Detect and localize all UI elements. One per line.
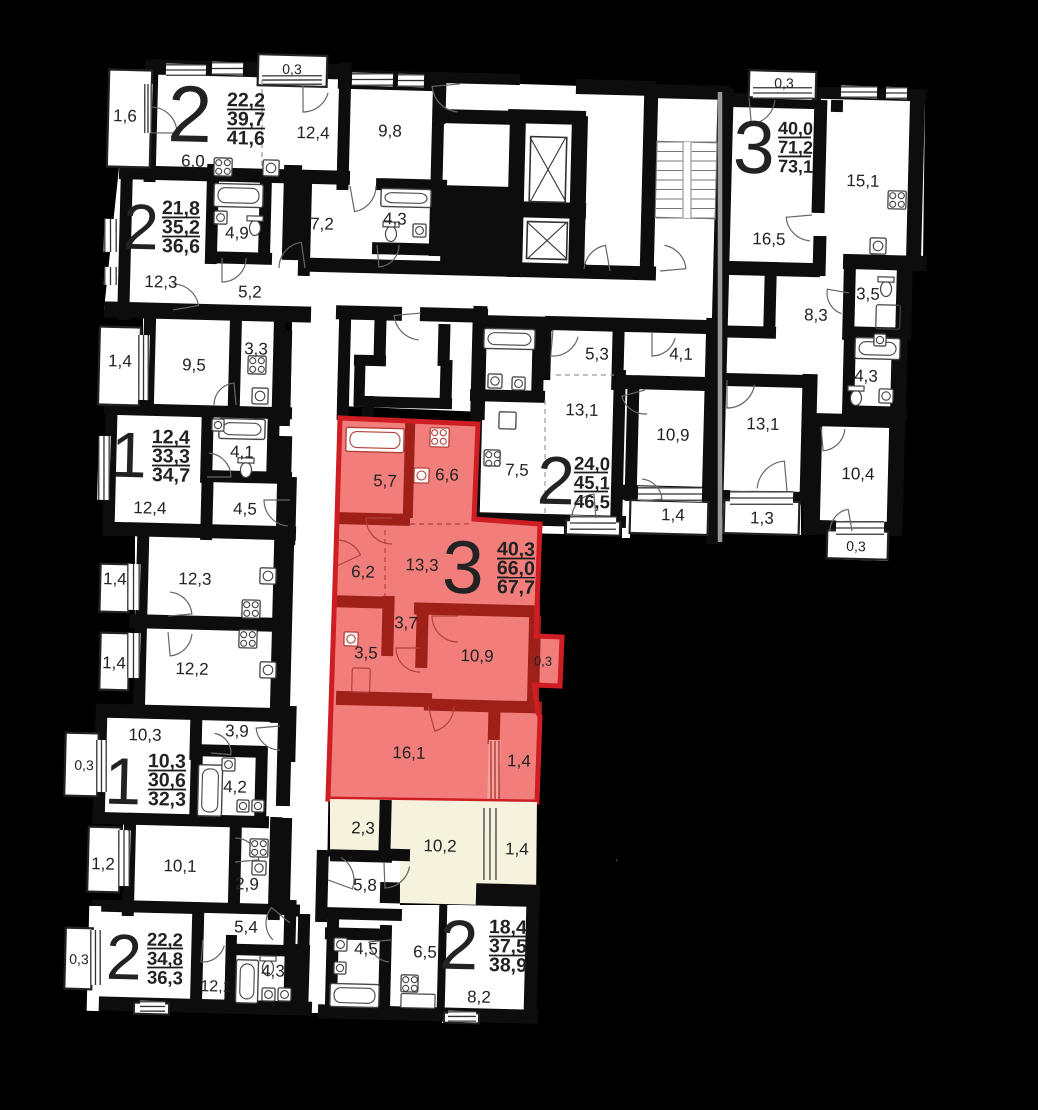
svg-text:12,1: 12,1	[200, 978, 232, 996]
svg-text:6,5: 6,5	[413, 942, 437, 962]
svg-text:0,3: 0,3	[846, 538, 866, 554]
svg-text:15,1: 15,1	[846, 171, 880, 191]
svg-text:1: 1	[110, 419, 147, 492]
svg-text:67,7: 67,7	[497, 576, 535, 599]
svg-text:10,9: 10,9	[460, 646, 494, 666]
svg-text:0,3: 0,3	[69, 951, 89, 967]
svg-text:0,3: 0,3	[534, 653, 552, 668]
svg-text:2: 2	[122, 191, 159, 264]
svg-text:2: 2	[536, 443, 576, 520]
svg-text:1,4: 1,4	[102, 653, 126, 673]
svg-text:6,2: 6,2	[351, 562, 375, 582]
svg-text:2,3: 2,3	[351, 818, 375, 838]
svg-text:1,4: 1,4	[108, 351, 132, 371]
svg-text:36,3: 36,3	[147, 967, 184, 989]
svg-text:5,4: 5,4	[234, 917, 258, 937]
svg-text:4,3: 4,3	[383, 209, 407, 229]
svg-text:34,7: 34,7	[152, 464, 190, 487]
svg-text:71,2: 71,2	[778, 137, 814, 158]
svg-text:10,9: 10,9	[656, 425, 690, 445]
svg-text:1,2: 1,2	[91, 854, 115, 874]
svg-text:13,1: 13,1	[565, 400, 599, 420]
svg-text:3,5: 3,5	[856, 284, 880, 304]
svg-text:4,9: 4,9	[225, 223, 249, 243]
svg-text:4,1: 4,1	[230, 442, 254, 462]
svg-text:8,3: 8,3	[804, 305, 828, 325]
svg-text:12,4: 12,4	[133, 498, 167, 518]
svg-text:0,3: 0,3	[282, 61, 302, 77]
svg-text:5,3: 5,3	[585, 344, 609, 364]
svg-text:4,5: 4,5	[233, 499, 257, 519]
svg-text:3,7: 3,7	[394, 613, 418, 633]
svg-text:2: 2	[105, 921, 142, 994]
svg-text:13,1: 13,1	[746, 414, 780, 434]
svg-text:6,6: 6,6	[435, 465, 459, 485]
svg-text:3,9: 3,9	[225, 721, 249, 741]
svg-text:5,7: 5,7	[373, 471, 397, 491]
svg-text:73,1: 73,1	[778, 156, 814, 177]
svg-text:1,4: 1,4	[507, 751, 531, 771]
svg-text:16,5: 16,5	[752, 229, 786, 249]
svg-text:13,3: 13,3	[405, 555, 439, 575]
svg-text:1,4: 1,4	[661, 505, 685, 525]
svg-text:1: 1	[104, 743, 143, 818]
svg-text:10,4: 10,4	[841, 464, 875, 484]
svg-text:38,9: 38,9	[489, 954, 528, 977]
svg-text:41,6: 41,6	[227, 127, 266, 150]
svg-text:4,5: 4,5	[354, 939, 378, 959]
svg-text:36,6: 36,6	[162, 235, 201, 258]
svg-text:32,3: 32,3	[148, 788, 187, 811]
svg-text:4,3: 4,3	[854, 366, 878, 386]
svg-text:0,3: 0,3	[774, 75, 794, 91]
svg-text:1,6: 1,6	[113, 106, 137, 126]
svg-text:0,3: 0,3	[74, 757, 94, 773]
svg-text:12,4: 12,4	[296, 123, 330, 143]
svg-text:6,0: 6,0	[181, 151, 205, 171]
svg-text:4,1: 4,1	[669, 344, 693, 364]
svg-text:10,3: 10,3	[128, 725, 162, 745]
svg-text:9,8: 9,8	[378, 121, 402, 141]
svg-text:3: 3	[732, 105, 776, 190]
svg-text:4,3: 4,3	[261, 961, 285, 981]
svg-text:3,5: 3,5	[354, 643, 378, 663]
svg-text:10,1: 10,1	[163, 856, 197, 876]
svg-text:7,5: 7,5	[505, 460, 529, 480]
svg-text:12,2: 12,2	[175, 659, 209, 679]
svg-text:3: 3	[441, 524, 485, 609]
svg-text:2: 2	[167, 69, 214, 159]
svg-text:1,4: 1,4	[103, 569, 127, 589]
svg-text:46,5: 46,5	[574, 490, 611, 512]
svg-text:12,3: 12,3	[144, 272, 178, 292]
svg-text:16,1: 16,1	[392, 743, 426, 763]
svg-text:8,2: 8,2	[467, 987, 491, 1007]
svg-text:2: 2	[439, 906, 480, 985]
svg-text:1,3: 1,3	[750, 508, 774, 528]
svg-text:1,4: 1,4	[505, 839, 529, 859]
svg-text:2,9: 2,9	[235, 874, 259, 894]
svg-text:4,2: 4,2	[223, 777, 247, 797]
svg-text:10,2: 10,2	[423, 836, 457, 856]
svg-text:3,3: 3,3	[244, 339, 268, 359]
svg-text:5,8: 5,8	[353, 875, 377, 895]
svg-text:7,2: 7,2	[310, 214, 334, 234]
svg-text:9,5: 9,5	[182, 355, 206, 375]
svg-text:5,2: 5,2	[238, 282, 262, 302]
svg-text:40,0: 40,0	[778, 118, 814, 139]
svg-text:12,3: 12,3	[178, 569, 212, 589]
